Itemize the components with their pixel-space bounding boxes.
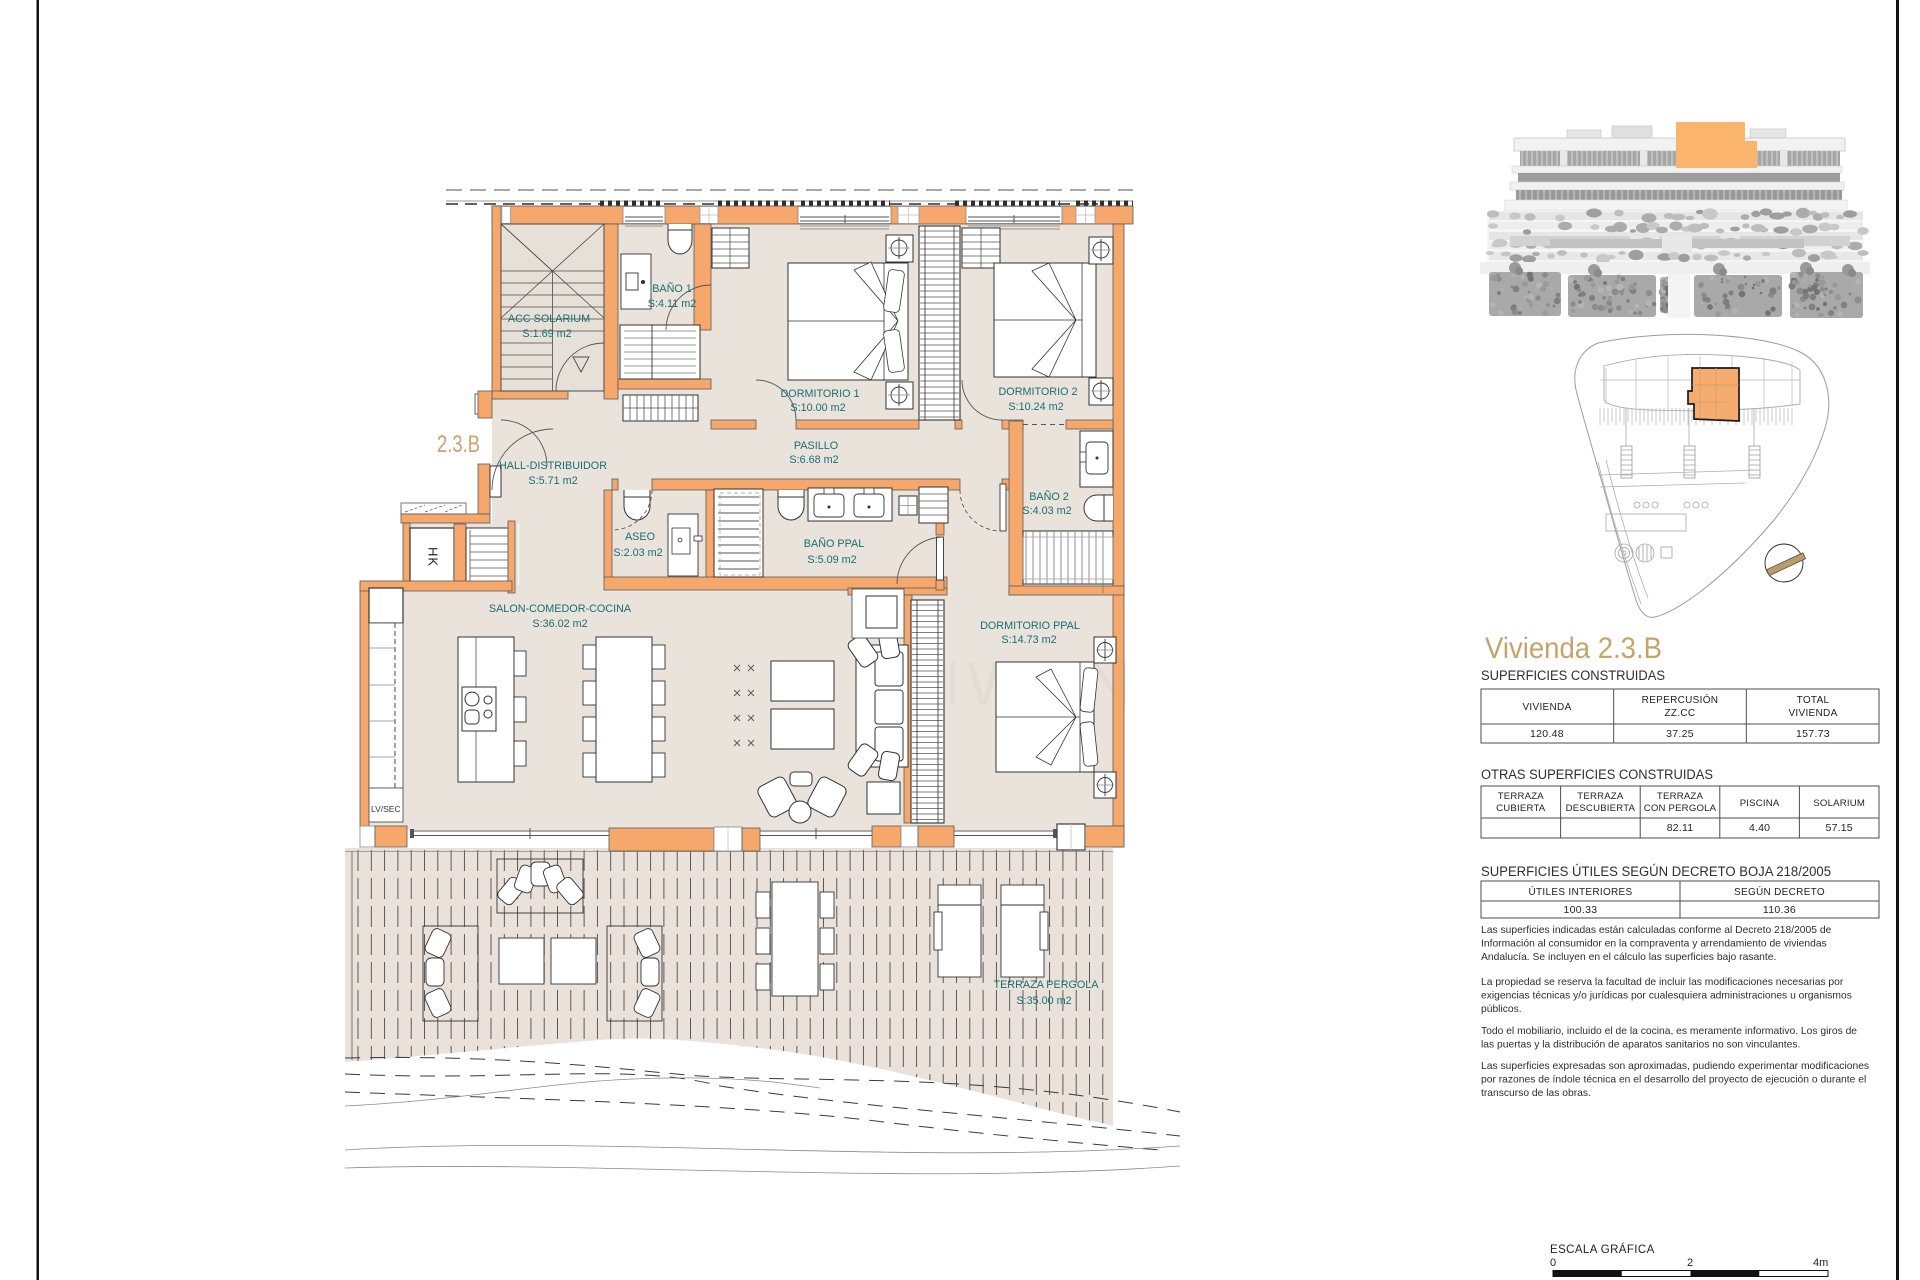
svg-text:BAÑO 1: BAÑO 1	[652, 282, 692, 295]
svg-text:S:10.00 m2: S:10.00 m2	[790, 402, 845, 414]
svg-text:SEGÚN DECRETO: SEGÚN DECRETO	[1734, 885, 1825, 898]
svg-text:CUBIERTA: CUBIERTA	[1496, 803, 1546, 814]
svg-text:Las superficies indicadas está: Las superficies indicadas están calculad…	[1481, 925, 1832, 936]
svg-text:Andalucía. Se incluyen en el c: Andalucía. Se incluyen en el cálculo las…	[1481, 952, 1776, 963]
svg-text:S:4.03 m2: S:4.03 m2	[1022, 505, 1071, 517]
svg-text:La propiedad se reserva la fac: La propiedad se reserva la facultad de i…	[1481, 977, 1844, 988]
svg-text:DESCUBIERTA: DESCUBIERTA	[1566, 803, 1636, 814]
svg-text:TERRAZA: TERRAZA	[1577, 791, 1624, 802]
svg-text:CON PERGOLA: CON PERGOLA	[1644, 803, 1717, 814]
svg-text:HALL-DISTRIBUIDOR: HALL-DISTRIBUIDOR	[499, 460, 607, 472]
svg-text:por razones de índole técnica: por razones de índole técnica en el desa…	[1481, 1075, 1866, 1086]
svg-text:S:5.71 m2: S:5.71 m2	[528, 475, 577, 487]
svg-text:REPERCUSIÓN: REPERCUSIÓN	[1642, 693, 1719, 706]
svg-text:120.48: 120.48	[1530, 728, 1564, 740]
svg-text:TERRAZA: TERRAZA	[1657, 791, 1704, 802]
svg-text:Todo el mobiliario, incluido e: Todo el mobiliario, incluido el de la co…	[1481, 1026, 1857, 1037]
svg-text:VIVIENDA: VIVIENDA	[1522, 702, 1571, 713]
svg-text:57.15: 57.15	[1826, 822, 1853, 834]
svg-text:OTRAS SUPERFICIES CONSTRUIDAS: OTRAS SUPERFICIES CONSTRUIDAS	[1481, 767, 1713, 782]
svg-text:DORMITORIO PPAL: DORMITORIO PPAL	[980, 620, 1080, 632]
svg-text:2.3.B: 2.3.B	[437, 431, 480, 458]
svg-text:S:1.69 m2: S:1.69 m2	[522, 328, 571, 340]
svg-text:Las superficies expresadas son: Las superficies expresadas son aproximad…	[1481, 1061, 1869, 1072]
svg-text:110.36: 110.36	[1763, 904, 1796, 916]
svg-text:VIVIENDA: VIVIENDA	[1788, 708, 1837, 719]
svg-text:4m: 4m	[1813, 1257, 1828, 1269]
svg-text:SUPERFICIES CONSTRUIDAS: SUPERFICIES CONSTRUIDAS	[1481, 668, 1665, 683]
svg-text:TERRAZA: TERRAZA	[1498, 791, 1545, 802]
svg-text:82.11: 82.11	[1667, 822, 1694, 834]
svg-text:S:36.02 m2: S:36.02 m2	[532, 618, 587, 630]
svg-text:100.33: 100.33	[1564, 904, 1598, 916]
svg-text:LV/SEC: LV/SEC	[371, 804, 401, 814]
svg-text:S:14.73 m2: S:14.73 m2	[1001, 634, 1056, 646]
svg-text:PISCINA: PISCINA	[1740, 798, 1780, 809]
svg-text:TOTAL: TOTAL	[1797, 695, 1830, 706]
svg-text:ESCALA GRÁFICA: ESCALA GRÁFICA	[1550, 1243, 1655, 1256]
svg-text:0: 0	[1550, 1257, 1556, 1269]
svg-text:PASILLO: PASILLO	[794, 440, 838, 452]
svg-text:HK: HK	[426, 547, 441, 567]
svg-text:DORMITORIO 1: DORMITORIO 1	[781, 388, 860, 400]
svg-text:S:4.11 m2: S:4.11 m2	[648, 298, 696, 310]
svg-text:BAÑO 2: BAÑO 2	[1029, 490, 1069, 503]
svg-text:157.73: 157.73	[1796, 728, 1830, 740]
svg-text:BAÑO PPAL: BAÑO PPAL	[804, 537, 864, 550]
svg-text:S:2.03 m2: S:2.03 m2	[613, 547, 662, 559]
svg-text:SOLARIUM: SOLARIUM	[1813, 798, 1865, 809]
svg-text:4.40: 4.40	[1749, 822, 1770, 834]
svg-text:S:6.68 m2: S:6.68 m2	[789, 454, 838, 466]
svg-text:ACC SOLARIUM: ACC SOLARIUM	[508, 313, 590, 325]
svg-text:exigencias técnicas y/o jurídi: exigencias técnicas y/o jurídicas por cu…	[1481, 991, 1852, 1002]
svg-text:37.25: 37.25	[1666, 728, 1694, 740]
svg-text:ASEO: ASEO	[625, 531, 655, 543]
svg-text:públicos.: públicos.	[1481, 1004, 1522, 1015]
svg-text:Información al consumidor en l: Información al consumidor en la comprave…	[1481, 939, 1827, 950]
svg-text:las puertas y la distribución: las puertas y la distribución de aparato…	[1481, 1040, 1800, 1051]
svg-text:TERRAZA PERGOLA: TERRAZA PERGOLA	[994, 979, 1100, 991]
svg-text:SALON-COMEDOR-COCINA: SALON-COMEDOR-COCINA	[489, 603, 632, 615]
svg-text:Vivienda 2.3.B: Vivienda 2.3.B	[1485, 632, 1662, 665]
svg-text:ÚTILES INTERIORES: ÚTILES INTERIORES	[1528, 885, 1632, 898]
svg-text:SUPERFICIES ÚTILES SEGÚN DECRE: SUPERFICIES ÚTILES SEGÚN DECRETO BOJA 21…	[1481, 864, 1831, 879]
svg-text:ZZ.CC: ZZ.CC	[1665, 708, 1696, 719]
svg-text:S:10.24 m2: S:10.24 m2	[1008, 401, 1063, 413]
svg-text:2: 2	[1687, 1257, 1693, 1269]
svg-text:transcurso de las obras.: transcurso de las obras.	[1481, 1088, 1591, 1099]
svg-text:DORMITORIO 2: DORMITORIO 2	[999, 386, 1078, 398]
svg-text:S:5.09 m2: S:5.09 m2	[807, 554, 856, 566]
svg-text:S:35.00 m2: S:35.00 m2	[1016, 995, 1071, 1007]
